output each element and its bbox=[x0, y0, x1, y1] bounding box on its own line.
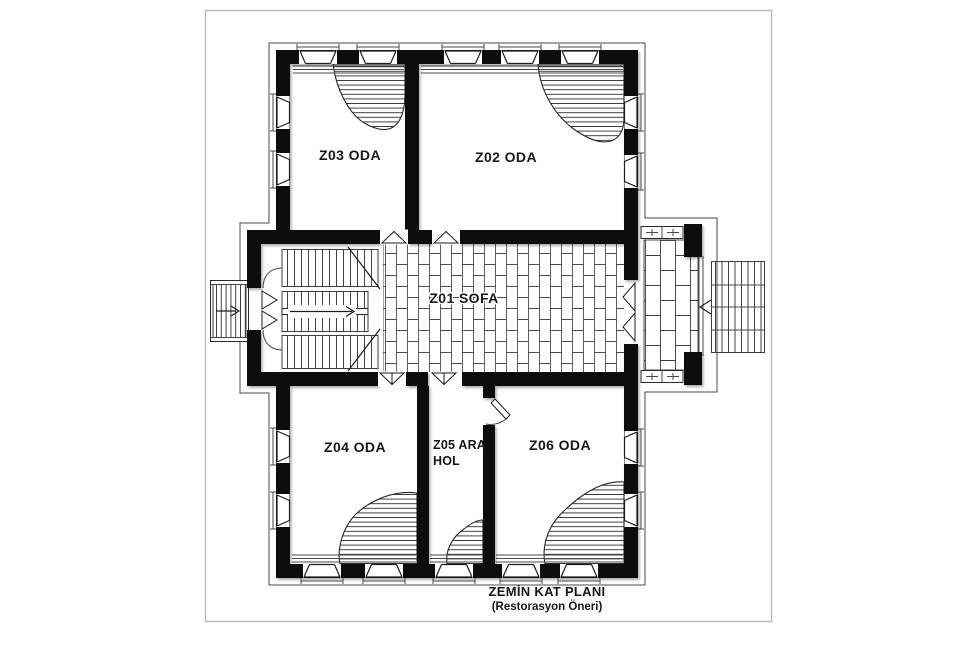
window bbox=[270, 492, 290, 529]
window bbox=[499, 44, 541, 64]
window bbox=[625, 94, 645, 131]
floor-plan-svg: Z03 ODA Z02 ODA Z01 SOFA Z04 ODA Z05 ARA… bbox=[0, 0, 976, 650]
room-label-z05-line1: Z05 ARA bbox=[433, 438, 486, 452]
window bbox=[442, 44, 484, 64]
room-label-z03: Z03 ODA bbox=[319, 147, 381, 163]
hatch-area-z04 bbox=[339, 492, 417, 564]
door-sofa-to-porch bbox=[623, 283, 635, 341]
window bbox=[559, 44, 601, 64]
window bbox=[301, 564, 343, 584]
sofa-floor-tiles bbox=[383, 244, 624, 372]
room-label-z02: Z02 ODA bbox=[475, 149, 537, 165]
room-label-z05-line2: HOL bbox=[433, 454, 460, 468]
porch-window-band-bottom bbox=[641, 371, 683, 383]
right-stair-arrow-icon bbox=[700, 300, 711, 314]
door-z05-to-z06 bbox=[486, 399, 510, 424]
door-sofa-to-z02 bbox=[432, 230, 460, 245]
room-label-z06: Z06 ODA bbox=[529, 437, 591, 453]
window bbox=[297, 44, 339, 64]
window bbox=[357, 44, 399, 64]
window bbox=[270, 428, 290, 465]
door-sofa-to-z05 bbox=[430, 372, 458, 387]
exterior-stair-left bbox=[211, 281, 249, 342]
door-sofa-to-z03 bbox=[380, 230, 408, 245]
room-label-z01: Z01 SOFA bbox=[429, 290, 498, 306]
window bbox=[625, 492, 645, 529]
window bbox=[625, 429, 645, 466]
exterior-stair-right bbox=[699, 256, 765, 356]
room-label-z04: Z04 ODA bbox=[324, 439, 386, 455]
hatch-area-z03 bbox=[333, 64, 405, 129]
interior-staircase bbox=[261, 244, 383, 372]
door-sofa-to-z04 bbox=[378, 372, 406, 387]
window bbox=[625, 153, 645, 190]
hatch-area-z05 bbox=[447, 520, 483, 564]
window bbox=[363, 564, 405, 584]
window bbox=[500, 564, 542, 584]
caption: ZEMİN KAT PLANI (Restorasyon Öneri) bbox=[489, 584, 606, 613]
window bbox=[270, 151, 290, 188]
porch-window-band-top bbox=[641, 227, 683, 239]
hatch-area-z02 bbox=[538, 64, 624, 142]
porch-floor-tiles bbox=[644, 240, 698, 370]
caption-subtitle: (Restorasyon Öneri) bbox=[492, 600, 603, 613]
stair-direction-arrow-icon bbox=[288, 305, 356, 318]
drawing-sheet: Z03 ODA Z02 ODA Z01 SOFA Z04 ODA Z05 ARA… bbox=[0, 0, 976, 650]
window bbox=[270, 94, 290, 131]
window bbox=[558, 564, 600, 584]
caption-title: ZEMİN KAT PLANI bbox=[489, 584, 606, 599]
hatch-area-z06 bbox=[544, 482, 624, 564]
window bbox=[433, 564, 475, 584]
